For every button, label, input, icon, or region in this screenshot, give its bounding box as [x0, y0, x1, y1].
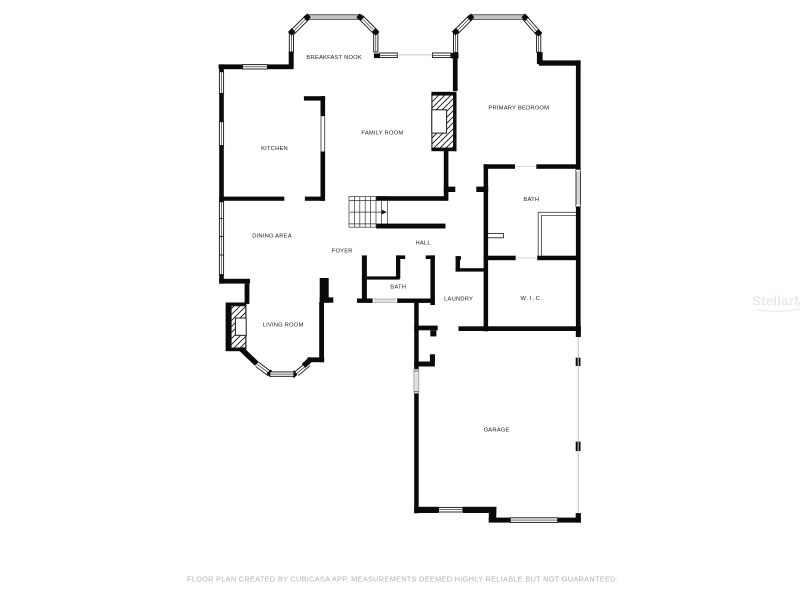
svg-text:DINING AREA: DINING AREA: [252, 234, 292, 240]
svg-text:BATH: BATH: [523, 197, 539, 203]
svg-text:FLOOR PLAN CREATED BY CUBICASA: FLOOR PLAN CREATED BY CUBICASA APP. MEAS…: [187, 575, 618, 584]
svg-text:LAUNDRY: LAUNDRY: [444, 296, 473, 302]
svg-text:LIVING ROOM: LIVING ROOM: [263, 323, 304, 329]
svg-text:KITCHEN: KITCHEN: [261, 146, 288, 152]
svg-text:FAMILY ROOM: FAMILY ROOM: [361, 130, 403, 136]
svg-text:BATH: BATH: [390, 284, 406, 290]
svg-text:HALL: HALL: [415, 241, 431, 247]
svg-text:W.I.C.: W.I.C.: [521, 296, 545, 302]
svg-text:PRIMARY BEDROOM: PRIMARY BEDROOM: [488, 105, 549, 111]
svg-text:GARAGE: GARAGE: [484, 428, 510, 434]
svg-text:StellarMLS: StellarMLS: [752, 294, 800, 309]
svg-text:BREAKFAST NOOK: BREAKFAST NOOK: [306, 55, 362, 61]
svg-text:FOYER: FOYER: [332, 249, 353, 255]
